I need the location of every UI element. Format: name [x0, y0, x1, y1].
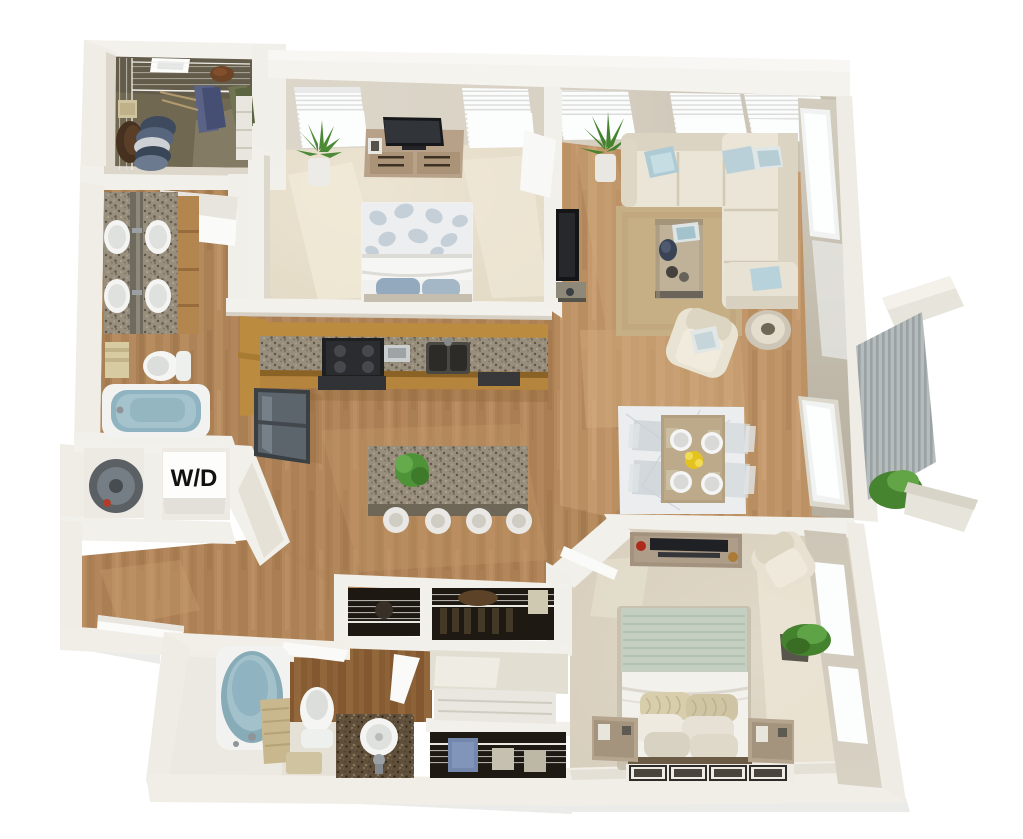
svg-text:W/D: W/D — [171, 465, 218, 492]
